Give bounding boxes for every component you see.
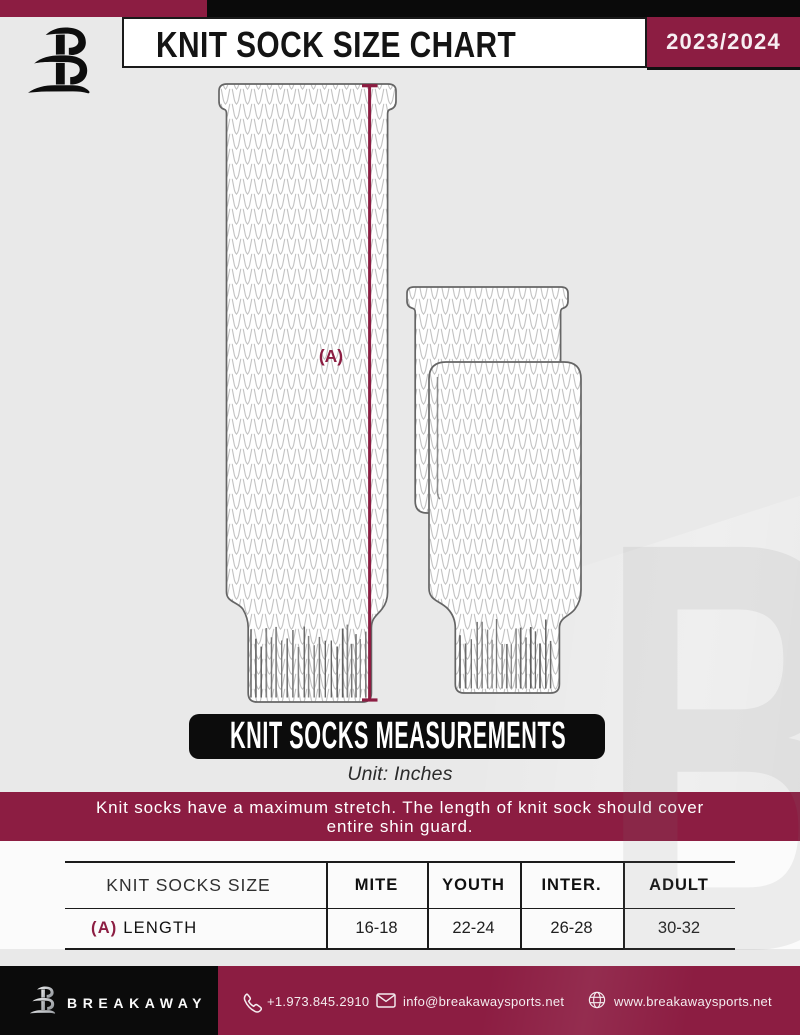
svg-text:(A): (A) <box>319 346 343 366</box>
